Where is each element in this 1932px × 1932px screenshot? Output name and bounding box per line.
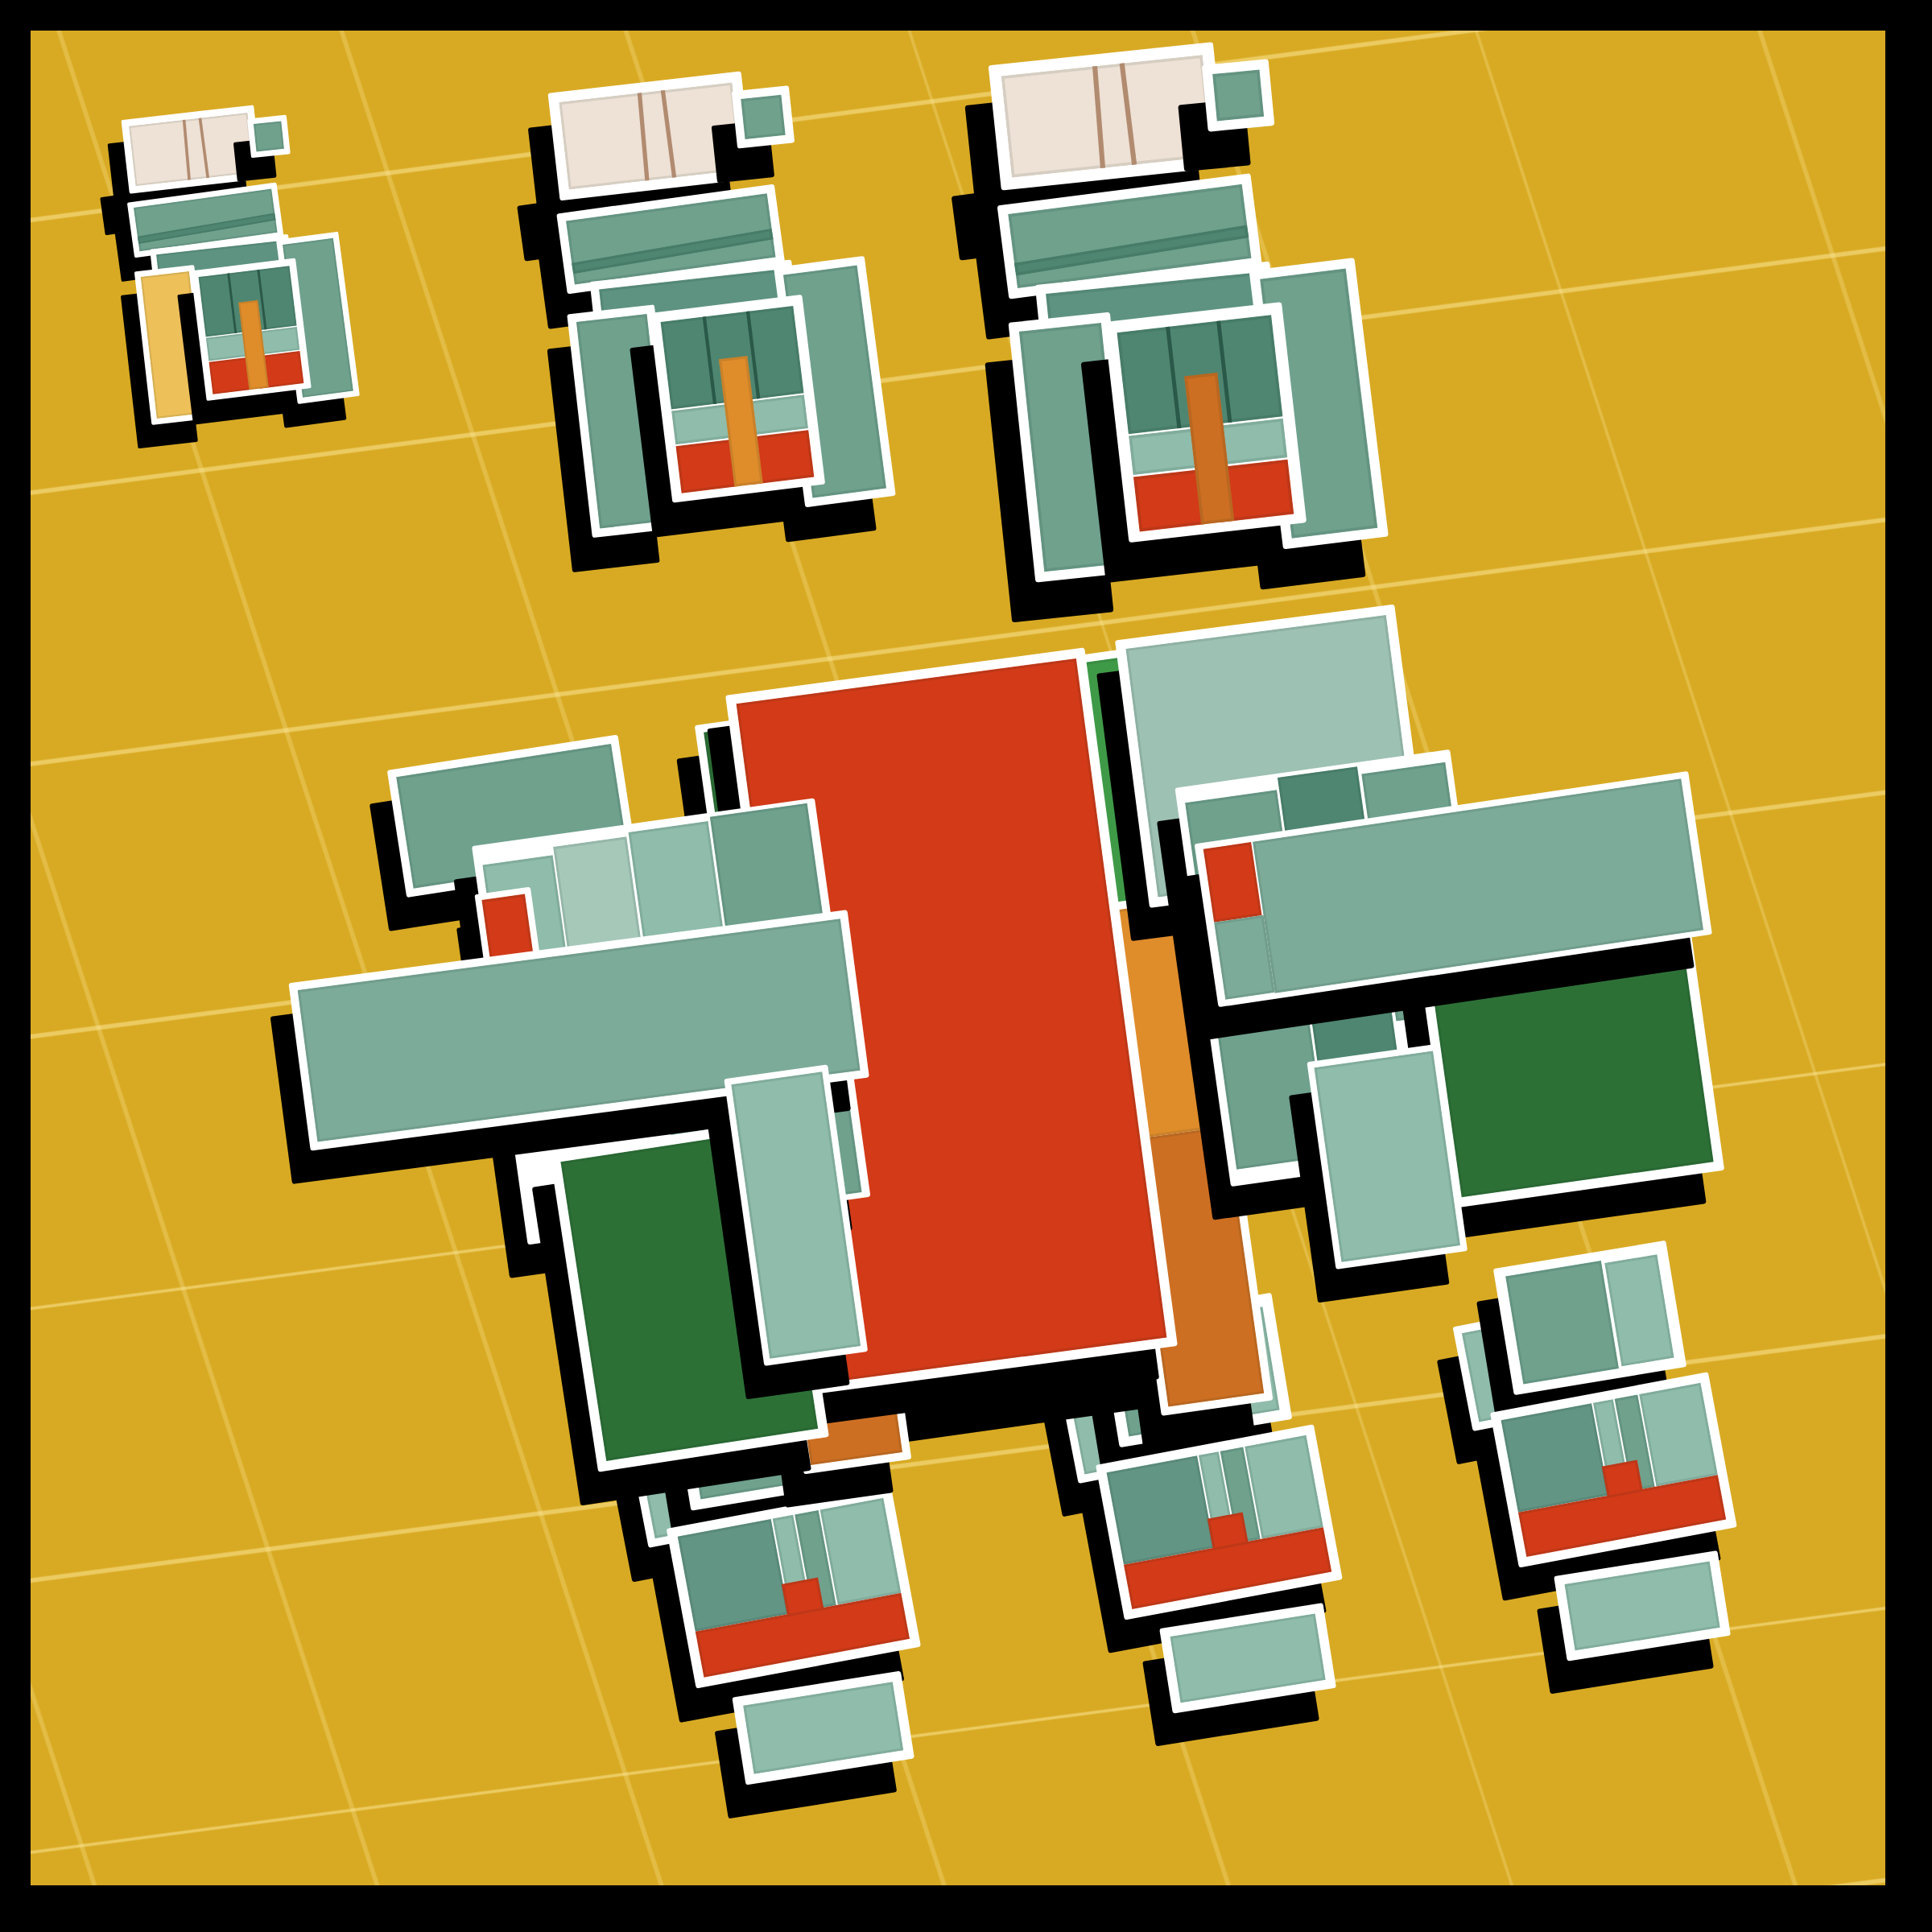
head-tile-head-cream	[559, 82, 741, 189]
foot-tile-foot	[743, 1682, 903, 1773]
artwork-canvas	[0, 0, 1932, 1932]
torso-tile	[191, 258, 312, 401]
foot-tile	[1554, 1550, 1731, 1662]
arm-right-red-chip-right	[1203, 842, 1262, 923]
totem-top-left	[107, 95, 366, 433]
foot-tile	[732, 1671, 914, 1785]
body-tile-body-left	[1107, 1455, 1215, 1564]
head-tile-head-cream	[1001, 55, 1213, 177]
torso-tile	[1104, 302, 1307, 543]
foot-tile-foot	[1565, 1561, 1720, 1650]
paper-background	[31, 31, 1885, 1885]
head-tile	[121, 105, 262, 193]
ear-right-tile	[1202, 59, 1275, 132]
ear-right-tile-ear-right	[741, 95, 785, 139]
totem-top-right	[964, 31, 1399, 597]
head-tile-head-cream	[129, 113, 254, 186]
body-tile-body-left	[678, 1519, 789, 1632]
torso-tile-foot-left	[209, 357, 251, 394]
totem-top-middle	[527, 57, 905, 550]
ear-right-tile-ear-right	[1212, 70, 1264, 122]
seafoam-strip-low-right-fill	[1314, 1051, 1460, 1261]
torso-tile	[650, 295, 826, 503]
torso-tile-foot-left	[676, 440, 737, 493]
ear-right-tile-ear-right	[254, 121, 284, 151]
ear-right-tile	[247, 115, 291, 159]
head-tile	[547, 71, 753, 200]
ear-right-tile	[732, 85, 795, 148]
body-tile-body-left	[1501, 1403, 1609, 1512]
foot-tile	[1159, 1603, 1336, 1714]
torso-tile-foot-left	[1133, 469, 1204, 531]
foot-tile-foot	[1170, 1613, 1326, 1703]
head-tile	[989, 42, 1226, 191]
